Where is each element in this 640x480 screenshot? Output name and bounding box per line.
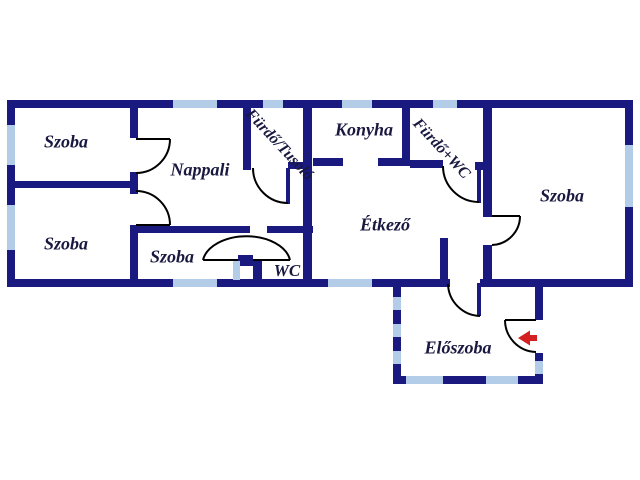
window [7,125,15,165]
window [433,100,457,108]
wall-wc-doorpost [238,255,253,266]
wall-eloszoba-left [393,283,401,377]
wall-eloszoba-right-upper [535,287,543,320]
wall-eloszoba-bottom-b [443,376,486,384]
window [263,100,283,108]
wall-eloszoba-bottom-c [518,376,543,384]
door-arcs-layer [0,0,640,480]
room-label-szoba-right: Szoba [540,186,584,207]
door-arc-szoba-bl [136,191,170,225]
window-eloszoba-bottom-b [486,376,518,384]
wall-wc-stub [253,261,262,280]
door-leaf-eloszoba [477,283,481,316]
door-arc-eloszoba-inner [448,284,480,316]
room-label-szoba-top-left: Szoba [44,132,88,153]
window [7,205,15,250]
door-arc-szoba-tl [136,139,170,173]
wall-szoba-nappali-lower [130,225,138,287]
wall-konyha-bottom-a [313,158,343,166]
room-label-nappali: Nappali [170,160,229,181]
window-eloszoba-bottom-a [406,376,443,384]
door-arc-entry [505,320,536,352]
room-label-etkezo: Étkező [360,215,410,236]
wall-eloszoba-bottom-a [393,376,406,384]
wall-szoba-divider [7,181,138,188]
wall-szoba-right-lower [483,245,492,287]
wall-outer-bottom-left [7,279,450,287]
wall-center-vertical [303,100,312,287]
window [342,100,372,108]
wall-outer-bottom-right [480,279,633,287]
wall-szoba-nappali-upper [130,100,138,138]
wall-outer-top [7,100,633,108]
wall-konyha-furdowc [402,100,410,166]
room-label-eloszoba: Előszoba [424,338,491,359]
wall-eloszoba-stub [440,238,448,280]
room-label-furdo-wc: Fürdő+WC [409,115,474,183]
room-label-wc: WC [274,261,300,281]
wall-nappali-bottom-a [130,226,250,233]
window [328,279,372,287]
door-leaf-furdowc [477,166,481,203]
door-arc-furdo [253,168,288,203]
door-leaf-furdo [286,168,290,204]
window [173,100,217,108]
room-label-konyha: Konyha [335,120,393,141]
entry-arrow-icon [518,331,537,346]
wall-furdowc-bottom [410,160,443,168]
window-wc-strip [233,261,240,280]
window [625,145,633,207]
window-eloszoba-right [535,361,543,375]
window [173,279,217,287]
room-label-szoba-bottom-left: Szoba [44,234,88,255]
wall-szoba-right-upper [483,100,492,217]
floor-plan: Szoba Szoba Nappali Szoba WC Fürdő/Tusol… [0,0,640,480]
room-label-szoba-middle: Szoba [150,247,194,268]
door-arc-szoba-right [492,216,520,245]
